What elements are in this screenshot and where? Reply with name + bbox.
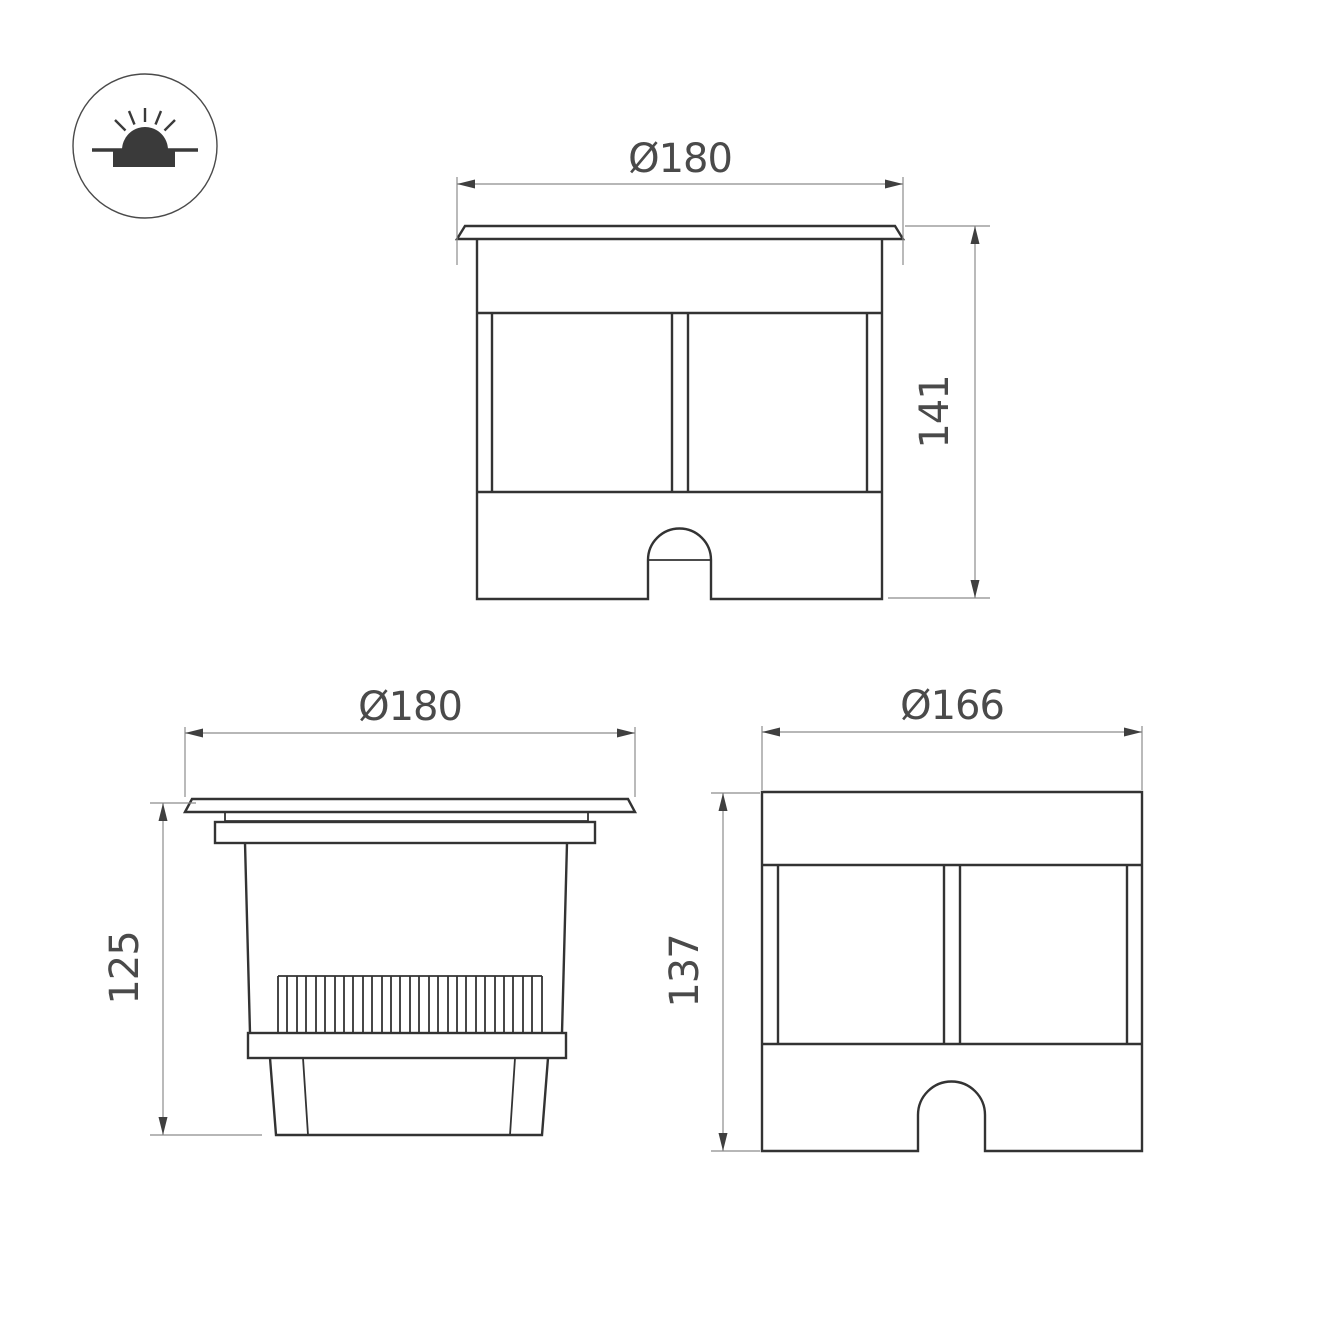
front-alt-window-edges xyxy=(762,865,1142,1044)
side-view-body xyxy=(245,843,567,1033)
front-view-flange xyxy=(457,226,903,239)
icon-lamp-dome xyxy=(122,127,168,150)
dimension-label: 125 xyxy=(102,931,148,1004)
side-view-mounting-ring xyxy=(215,822,595,843)
side-view-band xyxy=(248,1033,566,1058)
technical-drawing: Ø180 141 Ø180 xyxy=(0,0,1331,1331)
dimension-label: Ø180 xyxy=(628,136,732,182)
front-view-window-edges xyxy=(477,313,882,492)
front-view-body xyxy=(477,240,882,599)
front-view-width-dimension: Ø180 xyxy=(457,136,903,265)
side-view-width-dimension: Ø180 xyxy=(185,684,635,797)
front-alt-width-dimension: Ø166 xyxy=(762,683,1142,790)
front-view-alt: Ø166 137 xyxy=(662,683,1142,1151)
front-alt-window-dividers xyxy=(778,865,1127,1044)
side-view-flange xyxy=(185,799,635,812)
side-view-step xyxy=(225,812,588,821)
dimension-label: Ø166 xyxy=(900,683,1004,729)
side-view-box-legs xyxy=(303,1058,515,1135)
technical-drawing-page: Ø180 141 Ø180 xyxy=(0,0,1331,1331)
front-view-height-dimension: 141 xyxy=(888,226,990,598)
icon-buried-housing xyxy=(113,151,175,167)
extension-lines xyxy=(762,726,1142,790)
inground-light-icon xyxy=(73,74,217,218)
extension-lines xyxy=(457,177,903,265)
front-alt-height-dimension: 137 xyxy=(662,793,760,1151)
side-view-height-dimension: 125 xyxy=(102,803,262,1135)
extension-lines xyxy=(185,727,635,797)
side-view-junction-box xyxy=(270,1058,548,1135)
front-view: Ø180 141 xyxy=(457,136,990,599)
dimension-label: 137 xyxy=(662,934,708,1007)
dimension-label: Ø180 xyxy=(358,684,462,730)
extension-lines xyxy=(711,793,760,1151)
front-alt-body xyxy=(762,792,1142,1151)
front-view-window-dividers xyxy=(492,313,867,492)
side-view: Ø180 125 xyxy=(102,684,635,1135)
side-view-heatsink-fins xyxy=(278,976,542,1032)
dimension-label: 141 xyxy=(912,375,958,448)
